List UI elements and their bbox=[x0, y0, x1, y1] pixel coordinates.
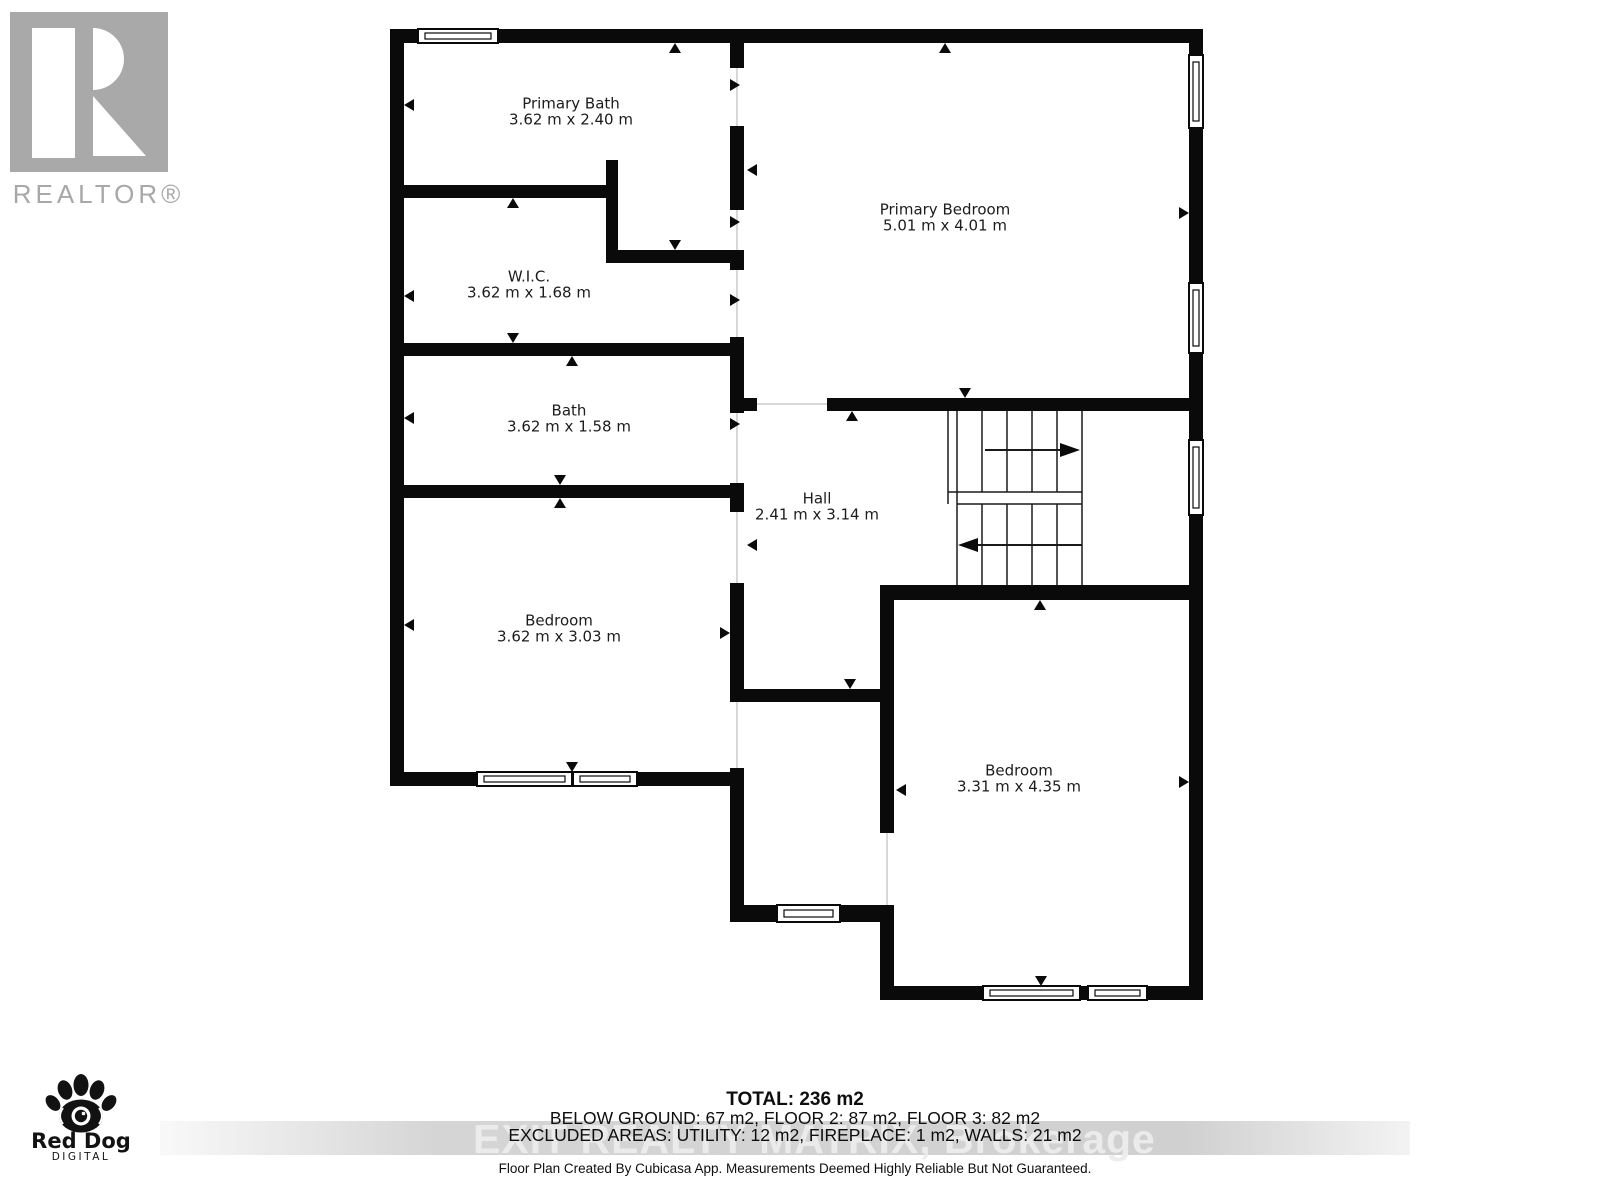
window bbox=[983, 986, 1080, 1000]
window bbox=[1189, 283, 1203, 353]
red-dog-name: Red Dog bbox=[21, 1129, 141, 1153]
door-arrow-icon bbox=[554, 475, 566, 485]
door-arrow-icon bbox=[554, 498, 566, 508]
room-dims: 3.62 m x 1.58 m bbox=[507, 419, 631, 435]
floor-plan-page: EXIT REALTY MATRIX, Brokerage bbox=[0, 0, 1600, 1200]
door-arrow-icon bbox=[1179, 776, 1189, 788]
door-arrow-icon bbox=[959, 388, 971, 398]
door-gap-guides bbox=[737, 60, 887, 907]
room-label-bath: Bath 3.62 m x 1.58 m bbox=[507, 404, 631, 435]
room-label-primary-bedroom: Primary Bedroom 5.01 m x 4.01 m bbox=[880, 203, 1011, 234]
window bbox=[573, 772, 637, 786]
red-dog-tagline: DIGITAL bbox=[21, 1151, 141, 1163]
floor-plan-drawing bbox=[0, 0, 1600, 1200]
door-arrow-icon bbox=[507, 333, 519, 343]
window bbox=[477, 772, 572, 786]
red-dog-paw-icon bbox=[43, 1074, 120, 1133]
window bbox=[1189, 440, 1203, 515]
window bbox=[777, 905, 840, 922]
door-arrow-icon bbox=[566, 762, 578, 772]
stairs-down-arrow-icon bbox=[958, 538, 978, 552]
room-label-bedroom-right: Bedroom 3.31 m x 4.35 m bbox=[957, 764, 1081, 795]
door-arrow-icon bbox=[730, 216, 740, 228]
door-arrow-icon bbox=[669, 240, 681, 250]
stairs-up-arrow-icon bbox=[1060, 443, 1080, 457]
door-arrow-icon bbox=[404, 99, 414, 111]
door-arrow-icon bbox=[720, 627, 730, 639]
door-arrow-icon bbox=[566, 356, 578, 366]
door-arrow-icon bbox=[404, 290, 414, 302]
realtor-logo-icon bbox=[10, 12, 168, 172]
window bbox=[1088, 986, 1147, 1000]
room-dims: 2.41 m x 3.14 m bbox=[755, 507, 879, 523]
room-dims: 3.62 m x 1.68 m bbox=[467, 285, 591, 301]
room-dims: 3.62 m x 2.40 m bbox=[509, 112, 633, 128]
door-arrow-icon bbox=[1035, 976, 1047, 986]
door-arrow-icon bbox=[747, 539, 757, 551]
room-dims: 3.31 m x 4.35 m bbox=[957, 779, 1081, 795]
door-arrow-icon bbox=[846, 411, 858, 421]
room-dims: 3.62 m x 3.03 m bbox=[497, 629, 621, 645]
staircase bbox=[948, 411, 1082, 585]
door-arrow-icon bbox=[844, 679, 856, 689]
door-arrow-icon bbox=[939, 43, 951, 53]
realtor-logo-label: REALTOR® bbox=[6, 179, 191, 210]
door-arrow-icon bbox=[896, 784, 906, 796]
door-arrow-icon bbox=[730, 294, 740, 306]
door-arrow-icon bbox=[1034, 600, 1046, 610]
room-label-primary-bath: Primary Bath 3.62 m x 2.40 m bbox=[509, 97, 633, 128]
room-label-wic: W.I.C. 3.62 m x 1.68 m bbox=[467, 270, 591, 301]
door-arrow-icon bbox=[1179, 207, 1189, 219]
door-arrow-icon bbox=[730, 79, 740, 91]
room-dims: 5.01 m x 4.01 m bbox=[880, 218, 1011, 234]
room-label-bedroom-left: Bedroom 3.62 m x 3.03 m bbox=[497, 614, 621, 645]
summary-excluded: EXCLUDED AREAS: UTILITY: 12 m2, FIREPLAC… bbox=[385, 1125, 1205, 1146]
door-arrow-icon bbox=[404, 412, 414, 424]
room-label-hall: Hall 2.41 m x 3.14 m bbox=[755, 492, 879, 523]
door-arrow-icon bbox=[730, 418, 740, 430]
door-arrow-icon bbox=[404, 619, 414, 631]
door-arrow-icon bbox=[669, 43, 681, 53]
window bbox=[418, 29, 498, 43]
summary-disclaimer: Floor Plan Created By Cubicasa App. Meas… bbox=[385, 1161, 1205, 1176]
window bbox=[1189, 55, 1203, 128]
door-arrow-icon bbox=[747, 164, 757, 176]
door-arrow-icon bbox=[507, 198, 519, 208]
